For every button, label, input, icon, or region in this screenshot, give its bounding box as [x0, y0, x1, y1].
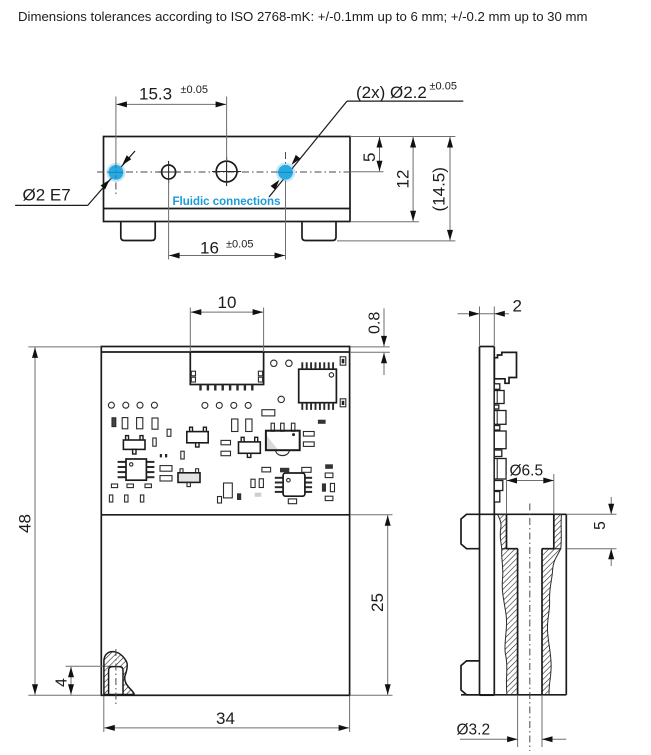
- svg-text:(14.5): (14.5): [430, 167, 449, 211]
- svg-text:Ø3.2: Ø3.2: [457, 722, 491, 739]
- svg-text:4: 4: [54, 678, 71, 687]
- svg-text:48: 48: [16, 514, 35, 533]
- svg-text:16: 16: [200, 239, 219, 258]
- svg-text:15.3: 15.3: [139, 85, 172, 104]
- svg-text:25: 25: [368, 593, 387, 612]
- svg-text:±0.05: ±0.05: [181, 84, 208, 96]
- svg-text:10: 10: [218, 293, 237, 312]
- svg-text:±0.05: ±0.05: [430, 81, 457, 93]
- svg-text:5: 5: [592, 521, 609, 530]
- svg-text:Ø6.5: Ø6.5: [510, 463, 544, 480]
- svg-text:34: 34: [216, 709, 235, 728]
- svg-text:Ø2 E7: Ø2 E7: [23, 186, 71, 205]
- svg-text:2: 2: [513, 297, 522, 316]
- svg-text:Fluidic connections: Fluidic connections: [173, 196, 281, 208]
- svg-text:5: 5: [360, 153, 379, 162]
- svg-text:0.8: 0.8: [367, 312, 384, 334]
- svg-text:Dimensions tolerances accordin: Dimensions tolerances according to ISO 2…: [18, 9, 588, 24]
- svg-text:(2x) Ø2.2: (2x) Ø2.2: [356, 83, 427, 102]
- svg-text:±0.05: ±0.05: [226, 239, 253, 251]
- svg-text:12: 12: [394, 170, 413, 189]
